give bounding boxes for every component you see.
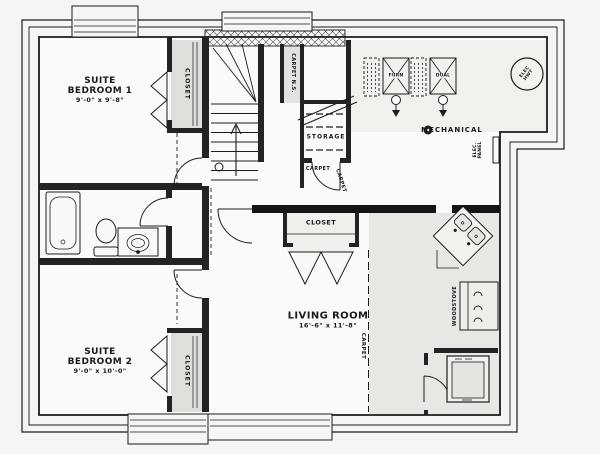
woodstove-label: WOODSTOVE	[453, 286, 459, 326]
furnace1-label: FURN	[388, 73, 405, 78]
bedroom2-name-line1: SUITE	[84, 347, 115, 357]
bedroom1-dims: 9'-0" x 9'-8"	[76, 97, 124, 104]
bedroom1-name-line1: SUITE	[84, 76, 115, 86]
furnace2-label: DUAL	[435, 73, 451, 78]
living-room-label: LIVING ROOM 16'-6" x 11'-8"	[288, 311, 369, 330]
bedroom2-dims: 9'-0" x 10'-0"	[73, 368, 126, 375]
elec-panel-line2: PANEL	[478, 141, 483, 158]
living-room-carpet-label: CARPET	[360, 333, 366, 359]
bedroom1-closet-label: CLOSET	[183, 68, 190, 100]
carpet-label-storage-door: CARPET	[306, 167, 330, 173]
storage-label: STORAGE	[307, 135, 346, 142]
living-room-dims: 16'-6" x 11'-8"	[299, 322, 357, 329]
elec-panel-label: ELEC. PANEL	[473, 141, 483, 158]
bedroom2-label: SUITE BEDROOM 2 9'-0" x 10'-0"	[68, 347, 133, 375]
bedroom2-closet-label: CLOSET	[183, 355, 190, 387]
floorplan-linework	[0, 0, 600, 454]
mechanical-label: MECHANICAL	[421, 126, 483, 134]
stair-carpet-ns-label: CARPET N.S.	[289, 53, 295, 93]
hatched-window-band	[205, 30, 345, 46]
center-closet-label: CLOSET	[306, 219, 336, 226]
living-room-name: LIVING ROOM	[288, 311, 369, 323]
bedroom1-label: SUITE BEDROOM 1 9'-0" x 9'-8"	[68, 76, 133, 104]
toilet	[96, 219, 116, 243]
basement-floor-plan: SUITE BEDROOM 1 9'-0" x 9'-8" SUITE BEDR…	[0, 0, 600, 454]
